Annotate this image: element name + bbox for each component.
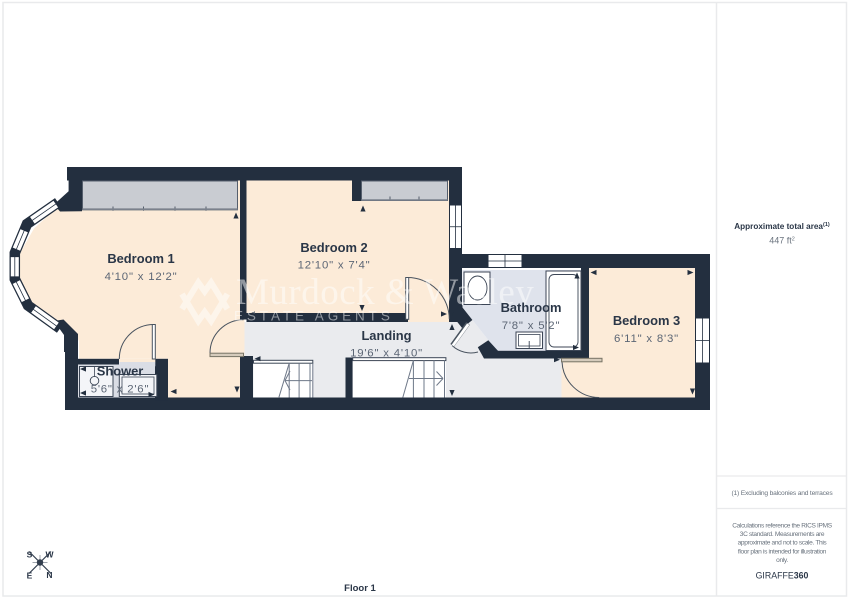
svg-text:GIRAFFE360: GIRAFFE360 [756,571,809,581]
svg-text:Bedroom 1: Bedroom 1 [107,251,174,266]
svg-text:12'10" x 7'4": 12'10" x 7'4" [298,260,371,272]
svg-text:447 ft2: 447 ft2 [769,236,795,246]
svg-text:floor plan is intended for ill: floor plan is intended for illustration [738,548,827,555]
svg-text:6'11" x 8'3": 6'11" x 8'3" [614,333,679,345]
svg-text:ESTATE AGENTS: ESTATE AGENTS [234,309,394,324]
svg-text:S: S [27,550,33,560]
svg-text:Bedroom 2: Bedroom 2 [300,240,367,255]
svg-text:approximate and not to scale.: approximate and not to scale. This [738,540,828,547]
svg-text:7'8" x 5'2": 7'8" x 5'2" [502,320,561,332]
svg-text:3C standard. Measurements are: 3C standard. Measurements are [740,531,825,538]
svg-text:19'6" x 4'10": 19'6" x 4'10" [350,348,423,360]
svg-text:Approximate total area(1): Approximate total area(1) [734,222,830,231]
svg-text:Calculations reference the RIC: Calculations reference the RICS IPMS [732,523,832,530]
svg-text:Shower: Shower [97,364,144,379]
svg-text:Bathroom: Bathroom [501,300,562,315]
svg-text:only.: only. [776,557,788,564]
svg-text:4'10" x 12'2": 4'10" x 12'2" [105,271,178,283]
svg-text:E: E [27,571,33,581]
svg-text:5'6" x 2'6": 5'6" x 2'6" [91,384,150,396]
svg-text:Murdock & Wasley: Murdock & Wasley [236,272,534,313]
svg-text:W: W [45,550,54,560]
svg-text:Floor 1: Floor 1 [344,583,376,594]
svg-text:(1) Excluding balconies and te: (1) Excluding balconies and terraces [732,490,834,497]
svg-text:N: N [46,570,52,580]
svg-text:Landing: Landing [361,328,411,343]
svg-text:Bedroom 3: Bedroom 3 [613,313,680,328]
